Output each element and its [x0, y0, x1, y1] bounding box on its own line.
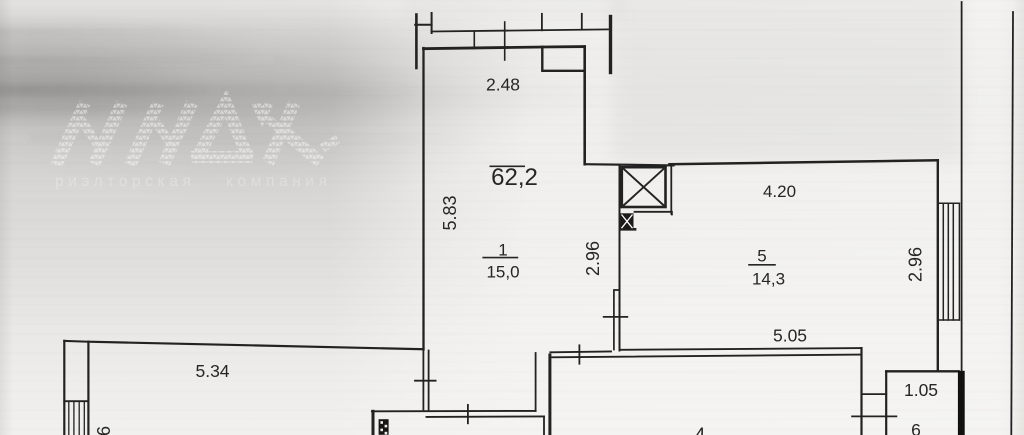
svg-text:5.34: 5.34 [195, 361, 229, 381]
svg-text:2.96: 2.96 [906, 247, 926, 282]
svg-text:5.83: 5.83 [440, 195, 460, 230]
svg-text:62,2: 62,2 [491, 164, 538, 191]
svg-text:5.05: 5.05 [773, 325, 807, 345]
svg-text:4: 4 [695, 425, 706, 435]
svg-text:2.96: 2.96 [583, 241, 603, 276]
svg-text:4.20: 4.20 [763, 182, 796, 201]
svg-text:2.48: 2.48 [486, 75, 520, 95]
svg-text:15,0: 15,0 [486, 263, 519, 282]
svg-text:5: 5 [757, 247, 766, 266]
svg-text:6: 6 [911, 420, 921, 435]
svg-text:1: 1 [498, 241, 507, 260]
svg-text:14,3: 14,3 [752, 270, 785, 289]
svg-text:6: 6 [94, 426, 114, 435]
svg-text:1.05: 1.05 [904, 380, 938, 400]
svg-text:компания: компания [226, 173, 332, 190]
svg-text:риэлторская: риэлторская [55, 173, 196, 190]
